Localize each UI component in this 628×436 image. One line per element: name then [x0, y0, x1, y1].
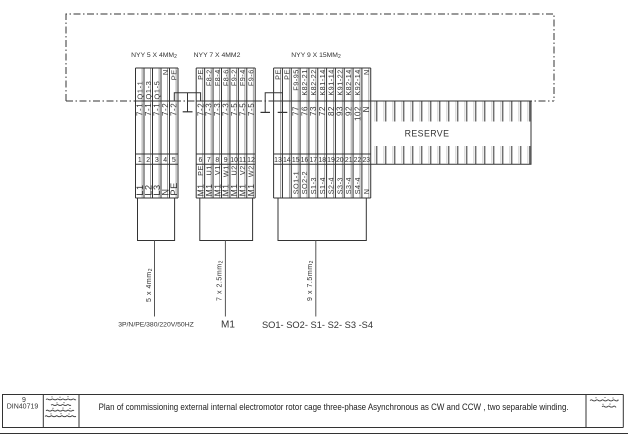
svg-text:21: 21 [345, 157, 353, 164]
svg-text:9 x 7.5mm2: 9 x 7.5mm2 [307, 260, 315, 301]
svg-text:7-2: 7-2 [170, 103, 179, 116]
svg-text:7: 7 [207, 157, 211, 164]
svg-text:S1-4: S1-4 [318, 177, 327, 194]
svg-text:F9-6: F9-6 [247, 69, 256, 86]
svg-text:S1-3: S1-3 [309, 177, 318, 194]
svg-text:K91-14: K91-14 [327, 69, 336, 95]
svg-text:F9-95: F9-95 [291, 69, 300, 91]
svg-text:93: 93 [336, 106, 345, 116]
svg-text:N: N [362, 189, 371, 195]
svg-text:14: 14 [283, 157, 291, 164]
svg-text:PE: PE [169, 69, 178, 80]
svg-text:72: 72 [318, 106, 327, 116]
svg-text:5 x 4mm2: 5 x 4mm2 [146, 268, 154, 302]
svg-text:3P/N/PE/380/220V/50HZ: 3P/N/PE/380/220V/50HZ [118, 322, 194, 329]
svg-text:76: 76 [300, 106, 309, 116]
svg-text:DIN40719: DIN40719 [7, 403, 39, 410]
svg-text:16: 16 [301, 157, 309, 164]
svg-text:K82-14: K82-14 [344, 69, 353, 95]
svg-text:PE: PE [169, 182, 179, 195]
svg-text:K82-21: K82-21 [300, 69, 309, 95]
svg-text:3: 3 [155, 157, 159, 164]
svg-text:SO1-1: SO1-1 [291, 171, 300, 195]
svg-text:2: 2 [146, 157, 150, 164]
svg-text:23: 23 [362, 157, 370, 164]
svg-text:4: 4 [163, 157, 167, 164]
svg-text:NYY 7 X 4MM2: NYY 7 X 4MM2 [194, 52, 241, 59]
svg-text:9: 9 [224, 157, 228, 164]
svg-text:N: N [362, 69, 371, 75]
svg-text:M1: M1 [246, 184, 256, 197]
svg-text:20: 20 [336, 157, 344, 164]
svg-text:11: 11 [239, 157, 246, 164]
svg-text:SO1- SO2- S1- S2- S3 -S4: SO1- SO2- S1- S2- S3 -S4 [262, 320, 373, 330]
svg-text:6: 6 [198, 157, 202, 164]
svg-text:18: 18 [318, 157, 326, 164]
svg-text:12: 12 [247, 157, 255, 164]
svg-text:S4-4: S4-4 [353, 177, 362, 194]
svg-text:7-5: 7-5 [247, 103, 256, 116]
svg-text:Q1-5: Q1-5 [152, 81, 161, 100]
svg-text:Plan of commissioning external: Plan of commissioning external internal … [99, 402, 569, 412]
svg-text:NYY 5 X 4MM2: NYY 5 X 4MM2 [131, 52, 177, 60]
svg-text:PE: PE [274, 69, 283, 80]
svg-text:10: 10 [230, 157, 238, 164]
svg-text:19: 19 [327, 157, 335, 164]
svg-text:15: 15 [292, 157, 300, 164]
svg-text:K82-22: K82-22 [309, 69, 318, 95]
svg-text:92: 92 [345, 106, 354, 116]
svg-text:13: 13 [274, 157, 282, 164]
svg-text:82: 82 [327, 106, 336, 116]
svg-text:73: 73 [309, 106, 318, 116]
svg-text:RESERVE: RESERVE [405, 128, 450, 138]
svg-text:77: 77 [292, 106, 301, 116]
svg-text:5: 5 [172, 157, 176, 164]
svg-text:S3-4: S3-4 [344, 177, 353, 194]
svg-text:7 x 2.5mm2: 7 x 2.5mm2 [217, 260, 225, 301]
svg-text:SO2-2: SO2-2 [300, 171, 309, 195]
svg-text:K81-14: K81-14 [318, 69, 327, 95]
svg-text:NYY 9 X 15MM2: NYY 9 X 15MM2 [291, 52, 341, 60]
svg-text:K92-14: K92-14 [353, 69, 362, 95]
svg-text:S3-3: S3-3 [335, 177, 344, 194]
svg-text:102: 102 [353, 106, 362, 121]
svg-text:8: 8 [215, 157, 219, 164]
svg-text:1: 1 [138, 157, 142, 164]
svg-text:22: 22 [354, 157, 362, 164]
svg-text:S2-4: S2-4 [327, 177, 336, 194]
svg-text:M1: M1 [221, 320, 235, 331]
svg-text:N: N [362, 106, 371, 112]
svg-text:W2: W2 [247, 165, 256, 177]
svg-text:PE: PE [282, 69, 291, 80]
svg-text:K91-22: K91-22 [335, 69, 344, 95]
svg-text:17: 17 [309, 157, 317, 164]
